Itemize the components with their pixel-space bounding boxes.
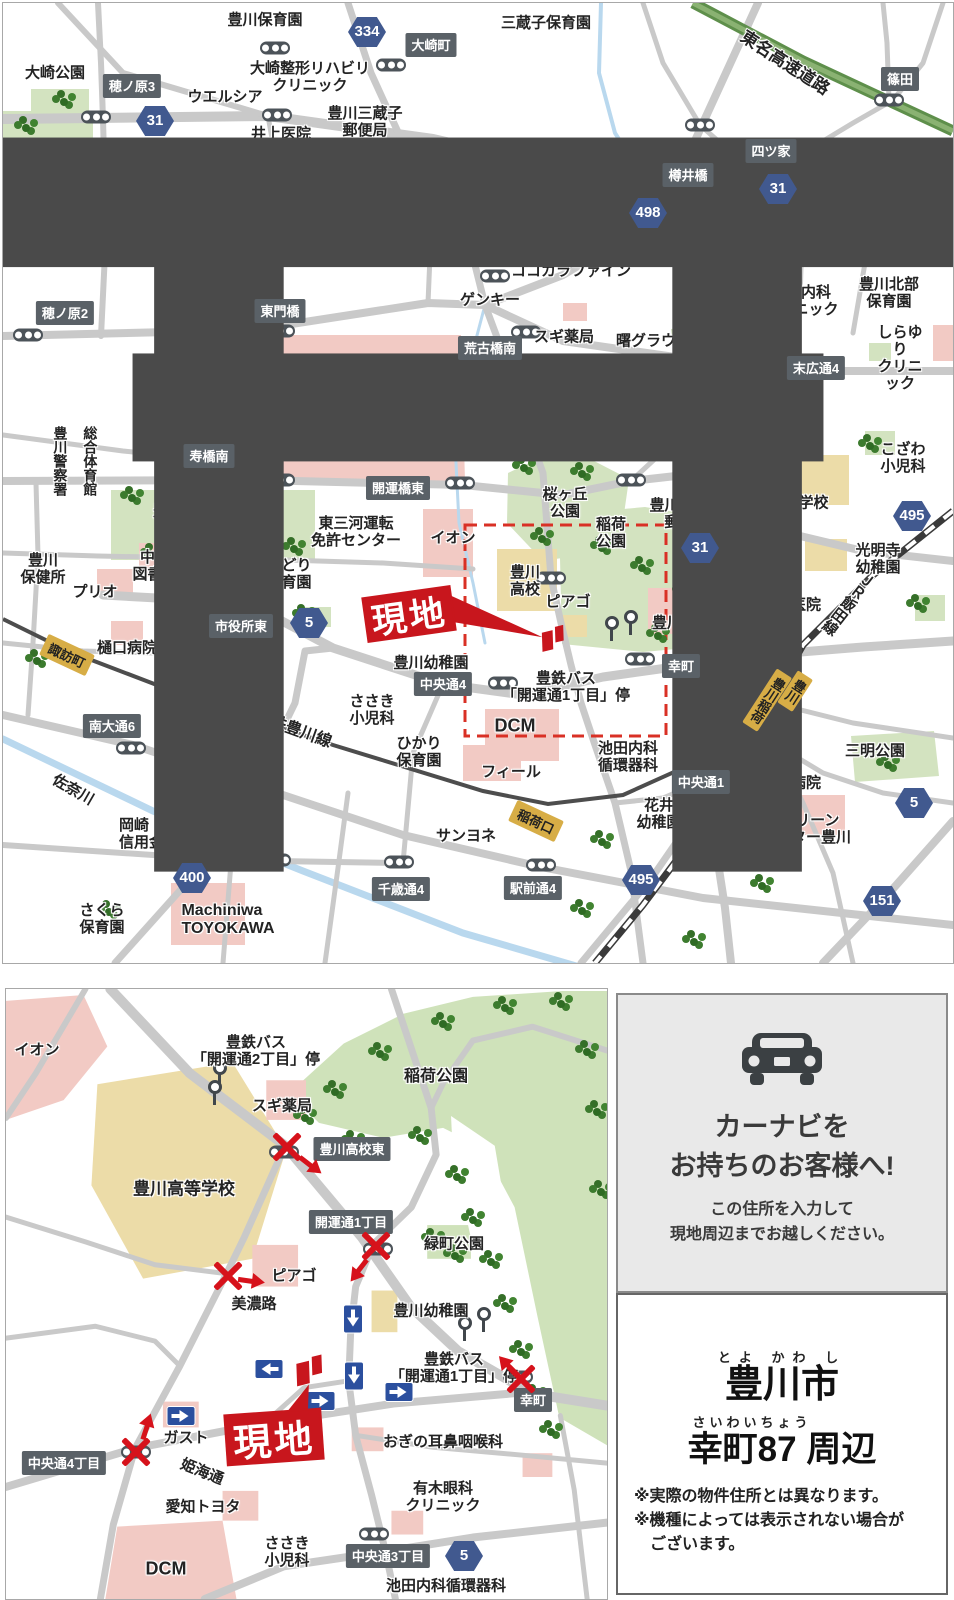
tree-cluster-icon	[445, 1166, 471, 1182]
intersection-label: 中央通1	[672, 770, 730, 794]
tree-cluster-icon	[549, 993, 575, 1009]
intersection-label: 駅前通4	[504, 876, 562, 900]
map-label: 豊川幼稚園	[393, 1302, 468, 1319]
tree-cluster-icon	[323, 1081, 349, 1097]
tree-cluster-icon	[539, 1421, 565, 1437]
map-label: 豊川高等学校	[133, 1179, 235, 1198]
tree-cluster-icon	[493, 997, 519, 1013]
map-label: 緑町公園	[424, 1235, 484, 1252]
map-label: おぎの耳鼻咽喉科	[383, 1433, 503, 1450]
intersection-label: 篠田	[881, 67, 919, 91]
intersection-label: 開運橋東	[366, 476, 430, 500]
map-label: イオン	[14, 1041, 59, 1058]
map-label: 稲荷公園	[404, 1068, 468, 1086]
intersection-label: 寿橋南	[183, 444, 234, 468]
site-marker: 現地	[363, 587, 454, 641]
intersection-label: 中央通3丁目	[346, 1544, 430, 1568]
map-label: 豊鉄バス 「開運通2丁目」停	[192, 1034, 320, 1068]
intersection-label: 幸町	[662, 654, 700, 678]
detail-map: 現地 イオン豊鉄バス 「開運通2丁目」停スギ薬局豊川高等学校稲荷公園美濃路ピアゴ…	[5, 988, 608, 1600]
address-disclaimers: ※実際の物件住所とは異なります。※機種によっては表示されない場合が ございます。	[618, 1485, 946, 1557]
town-furigana: さいわいちょう	[558, 1412, 946, 1431]
intersection-label: 荒古橋南	[458, 336, 522, 360]
map-label: ピアゴ	[271, 1267, 316, 1284]
intersection-label: 中央通4	[414, 672, 472, 696]
car-navi-note: この住所を入力して 現地周辺までお越しください。	[618, 1198, 946, 1248]
map-label: 愛知トヨタ	[165, 1498, 240, 1515]
tree-cluster-icon	[589, 1181, 608, 1197]
address-panel: とよ かわ し 豊川市 さいわいちょう 幸町87 周辺 ※実際の物件住所とは異な…	[616, 1293, 948, 1595]
map-label: DCM	[146, 1559, 187, 1580]
intersection-label: 中央通4丁目	[22, 1451, 106, 1475]
map-label: 池田内科循環器科	[386, 1577, 506, 1594]
one-way-arrow-icon	[167, 1406, 196, 1426]
tree-cluster-icon	[368, 1043, 394, 1059]
map-label: 有木眼科 クリニック	[405, 1480, 480, 1514]
intersection-label: 南大通6	[83, 714, 141, 738]
intersection-label: 豊川高校東	[313, 1137, 390, 1161]
bus-stop-icon	[458, 1316, 470, 1341]
detail-map-base	[6, 989, 607, 1599]
tree-cluster-icon	[479, 1251, 505, 1267]
tree-cluster-icon	[493, 1295, 519, 1311]
map-label: スギ薬局	[252, 1097, 312, 1114]
access-map-page: N 現地 豊川保育園大崎整形リハビリ クリニック三蔵子保育園大崎公園ウエルシア井…	[0, 0, 954, 1600]
map-label: 美濃路	[231, 1295, 276, 1312]
site-marker: 現地	[225, 1410, 322, 1464]
intersection-label: 穂ノ原3	[103, 74, 161, 98]
car-navi-panel: カーナビを お持ちのお客様へ! この住所を入力して 現地周辺までお越しください。	[616, 993, 948, 1293]
intersection-label: 穂ノ原2	[36, 301, 94, 325]
car-icon	[738, 1031, 826, 1089]
tree-cluster-icon	[575, 1041, 601, 1057]
tree-cluster-icon	[431, 1013, 457, 1029]
bus-stop-icon	[477, 1307, 489, 1332]
address-disclaimer: ※実際の物件住所とは異なります。	[634, 1485, 930, 1509]
map-label: ガスト	[163, 1429, 208, 1446]
intersection-label: 大崎町	[405, 33, 456, 57]
one-way-arrow-icon	[343, 1305, 363, 1334]
address-disclaimer: ※機種によっては表示されない場合が ございます。	[634, 1509, 930, 1557]
intersection-label: 四ツ家	[745, 139, 796, 163]
tree-cluster-icon	[585, 1101, 608, 1117]
overview-map: N 現地 豊川保育園大崎整形リハビリ クリニック三蔵子保育園大崎公園ウエルシア井…	[2, 2, 954, 964]
intersection-label: 千歳通4	[372, 877, 430, 901]
tree-cluster-icon	[461, 1209, 487, 1225]
torii-icon	[3, 3, 953, 963]
intersection-label: 末広通4	[787, 356, 845, 380]
one-way-arrow-icon	[344, 1362, 364, 1391]
one-way-arrow-icon	[255, 1359, 284, 1379]
map-label: ささき 小児科	[264, 1535, 309, 1569]
intersection-label: 樽井橋	[662, 163, 713, 187]
intersection-label: 東門橋	[254, 299, 305, 323]
one-way-arrow-icon	[385, 1382, 414, 1402]
car-navi-title: カーナビを お持ちのお客様へ!	[618, 1108, 946, 1186]
traffic-signal-icon	[359, 1528, 389, 1541]
tree-cluster-icon	[408, 1127, 434, 1143]
intersection-label: 市役所東	[209, 614, 273, 638]
city-name: 豊川市	[618, 1366, 946, 1406]
bus-stop-icon	[208, 1080, 220, 1105]
town-address: 幸町87 周辺	[618, 1431, 946, 1470]
